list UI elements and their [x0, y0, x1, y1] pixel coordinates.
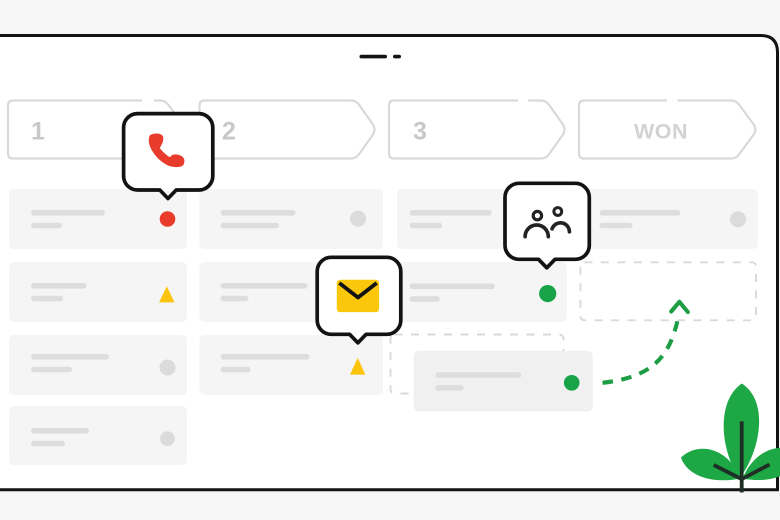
svg-text:2: 2 [222, 118, 236, 146]
svg-text:1: 1 [31, 118, 45, 146]
svg-text:WON: WON [634, 120, 688, 144]
svg-text:3: 3 [413, 118, 427, 146]
